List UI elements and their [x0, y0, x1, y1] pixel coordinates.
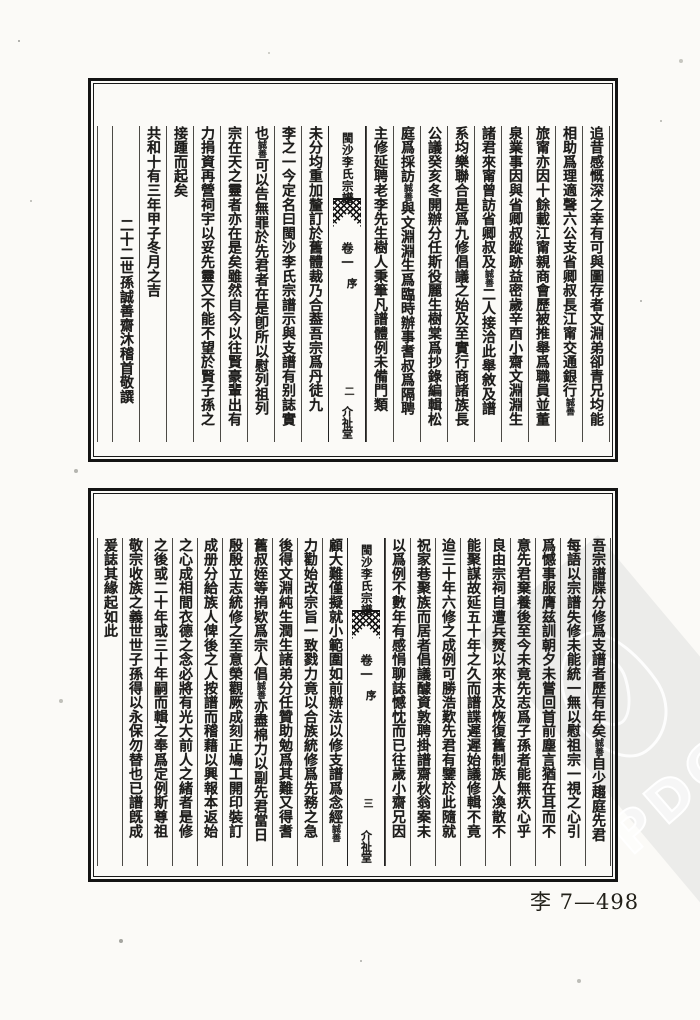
bottom-page-text-block: 九修宗譜序 吾宗譜牒分修爲支譜者歷有年矣誠善自少趨庭先君 每語以宗譜失修未能統一…	[94, 494, 613, 876]
catalog-number-label: 李 7—498	[530, 886, 639, 916]
text-column: 爰誌其緣起如此	[97, 538, 122, 866]
author-name-note: 誠善	[255, 681, 265, 699]
text-column: 主修延聘老李先生樹人秉筆凡譜體例未備門類	[366, 126, 393, 442]
text-column: 之後或二十年或三十年嗣而輯之奉爲定例斯尊祖	[147, 538, 172, 866]
fishtail-ornament-icon	[333, 198, 361, 227]
text-column: 成册分給族人俾後之人按譜而稽藉以興報本返始	[197, 538, 222, 866]
banxin-center-column: 閩沙李氏宗譜 卷一 序 二 介祉堂	[328, 126, 366, 442]
text-column: 後得文淵純生潤生諸弟分任贊助勉爲其難又得耆	[272, 538, 297, 866]
banxin-page-number: 二	[342, 386, 352, 396]
text-column: 迨三十年六修之成例可勝浩歎先君有鑒於此隨就	[435, 538, 460, 866]
text-column: 祝家巷聚族而居者倡議醵資敦聘掛譜齋秋翁案未	[410, 538, 435, 866]
text-column: 追昔感慨深之幸有可與圖存者文淵弟卻青兄均能	[582, 126, 609, 442]
text-column: 系均樂聯合是爲九修倡議之始及至實行商諸族長	[447, 126, 474, 442]
text-column: 宗在天之靈者亦在是矣雖然自今以往賢豪輩出有	[220, 126, 247, 442]
author-name-note: 誠善	[593, 738, 603, 756]
text-column: 力勸始改宗旨一致戮力竟以合族統修爲先務之急	[297, 538, 322, 866]
scanned-genealogy-page: { "document": { "watermark_label": "PDG"…	[0, 0, 700, 1020]
text-column: 舊叔姪等捐欵爲宗人倡誠善亦盡棉力以副先君當日	[247, 538, 272, 866]
banxin-section-label: 序	[346, 278, 357, 289]
banxin-book-title: 閩沙李氏宗譜	[341, 132, 353, 204]
preface-title-column: 九修宗譜序	[610, 538, 613, 866]
top-page-text-block: 首爲小齋兄賀成曾幾何時而小齋墓又宿草矣撫今 追昔感慨深之幸有可與圖存者文淵弟卻青…	[94, 84, 613, 456]
text-column: 之心成相間衣德之念必將有光大前人之緒者是修	[172, 538, 197, 866]
text-column: 也誠善可以告無罪於先君者在是卽所以慰列祖列	[247, 126, 274, 442]
author-name-note: 誠善	[483, 269, 493, 287]
text-column: 旅甯亦因十餘載江甯親商會歷被推舉爲職員並董	[528, 126, 555, 442]
banxin-section-label: 序	[365, 690, 376, 701]
text-column: 未分均重加釐訂於舊體裁乃合葢吾宗爲丹徒九	[301, 126, 328, 442]
text-column: 能聚謀故延五十年之久而譜諜遲遲始議修輯不竟	[460, 538, 485, 866]
fishtail-ornament-icon	[352, 610, 380, 639]
text-column: 吾宗譜牒分修爲支譜者歷有年矣誠善自少趨庭先君	[585, 538, 610, 866]
text-column: 敬宗收族之義世世子孫得以永保勿替也已譜旣成	[122, 538, 147, 866]
date-column: 共和十有三年甲子冬月之吉	[139, 126, 166, 442]
text-column: 相助爲理適聲六公支省卿叔長江甯交通銀行誠善	[555, 126, 582, 442]
bottom-page-inner-frame: 九修宗譜序 吾宗譜牒分修爲支譜者歷有年矣誠善自少趨庭先君 每語以宗譜失修未能統一…	[93, 493, 613, 877]
text-column: 力捐資再營祠宇以妥先靈又不能不望於賢子孫之	[193, 126, 220, 442]
banxin-juan-number: 卷一	[341, 242, 353, 270]
text-column: 泉業事因與省卿叔蹤跡益密歲辛酉小齋文淵淵生	[501, 126, 528, 442]
text-column: 首爲小齋兄賀成曾幾何時而小齋墓又宿草矣撫今	[609, 126, 613, 442]
text-column: 殷殷立志統修之至意榮觀厥成刻正鳩工開印裝訂	[222, 538, 247, 866]
banxin-hall-name: 介祉堂	[342, 406, 353, 439]
banxin-book-title: 閩沙李氏宗譜	[360, 544, 372, 616]
text-column: 爲憾事服膺兹訓朝夕未嘗回首前塵言猶在耳而不	[535, 538, 560, 866]
empty-column	[97, 126, 112, 442]
author-name-note: 誠善	[564, 398, 574, 416]
author-name-note: 誠善	[330, 824, 340, 842]
text-column: 庭爲採訪誠善與文淵淵生爲臨時辦事耆叔爲隔聘	[393, 126, 420, 442]
text-column: 接踵而起矣	[166, 126, 193, 442]
author-name-note: 誠善	[402, 183, 412, 201]
banxin-center-column: 閩沙李氏宗譜 卷一 序 三 介祉堂	[347, 538, 385, 866]
text-column: 公議癸亥冬開辦分任斯役麗生樹棠爲抄錄編輯松	[420, 126, 447, 442]
banxin-page-number: 三	[361, 798, 371, 808]
author-name-note: 誠善	[256, 140, 266, 158]
scan-noise	[18, 40, 20, 42]
text-column: 以爲例不數年有感悁聊誌憾忱而已往歲小齋兄因	[385, 538, 410, 866]
text-column: 每語以宗譜失修未能統一無以慰祖宗一視之心引	[560, 538, 585, 866]
text-column: 諸君來甯曾訪省卿叔及誠善二人接洽此舉敘及譜	[474, 126, 501, 442]
bottom-page-frame: 九修宗譜序 吾宗譜牒分修爲支譜者歷有年矣誠善自少趨庭先君 每語以宗譜失修未能統一…	[88, 488, 618, 882]
banxin-hall-name: 介祉堂	[361, 830, 372, 863]
banxin-juan-number: 卷一	[360, 654, 372, 682]
signature-column: 二十二世孫誠善齋沐稽首敬譔	[112, 126, 139, 442]
top-page-frame: 首爲小齋兄賀成曾幾何時而小齋墓又宿草矣撫今 追昔感慨深之幸有可與圖存者文淵弟卻青…	[88, 78, 618, 462]
text-column: 意先君棄養後至今未竟先志爲子孫者能無疚心乎	[510, 538, 535, 866]
text-column: 良由宗祠自遭兵燹以來未及恢復舊制族人渙散不	[485, 538, 510, 866]
text-column: 李之一今定名曰閩沙李氏宗譜示與支譜有别誌實	[274, 126, 301, 442]
text-column: 顧大難僅擬就小範圍如前辦法以修支譜爲念經誠善	[322, 538, 347, 866]
top-page-inner-frame: 首爲小齋兄賀成曾幾何時而小齋墓又宿草矣撫今 追昔感慨深之幸有可與圖存者文淵弟卻青…	[93, 83, 613, 457]
